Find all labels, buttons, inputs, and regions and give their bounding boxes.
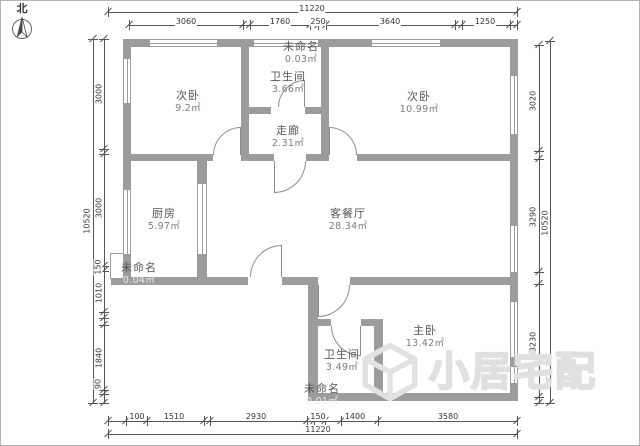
dimension-line [550, 41, 551, 403]
window [123, 189, 131, 255]
window [371, 39, 441, 47]
dimension-total-top: 11220 [298, 4, 325, 13]
room-area: 28.34㎡ [329, 221, 368, 232]
room-label-bedroom-right: 次卧 10.99㎡ [400, 91, 439, 115]
room-name: 卫生间 [270, 71, 306, 83]
room-label-master-bedroom: 主卧 13.42㎡ [406, 325, 445, 349]
dimension-label: 1010 [95, 282, 104, 304]
room-label-bathroom-top: 卫生间 3.66㎡ [270, 71, 306, 95]
dimension-label: 3230 [529, 331, 538, 353]
dimension-label: 1840 [95, 347, 104, 369]
door-opening [213, 154, 241, 161]
room-label-kitchen: 厨房 5.97㎡ [148, 208, 180, 232]
dimension-label: 1510 [163, 412, 185, 421]
room-area: 10.99㎡ [400, 104, 439, 115]
room-area: 0.04㎡ [121, 275, 157, 286]
door-arc [274, 161, 306, 193]
room-area: 13.42㎡ [406, 338, 445, 349]
door-arc [318, 285, 350, 317]
room-area: 3.49㎡ [324, 362, 360, 373]
dimension-total-right: 10520 [541, 209, 550, 236]
door-opening [248, 277, 282, 285]
room-name: 客餐厅 [329, 208, 368, 220]
room-area: 5.97㎡ [148, 221, 180, 232]
wall [241, 47, 249, 161]
north-indicator: 北 [9, 3, 35, 45]
dimension-line [104, 39, 105, 403]
window [149, 39, 218, 47]
compass-icon [10, 15, 34, 41]
door-opening [318, 277, 350, 285]
room-name: 卫生间 [324, 349, 360, 361]
door-opening [331, 319, 361, 326]
floorplan-canvas: 北 次卧 9.2㎡ [0, 0, 640, 446]
room-name: 走廊 [272, 125, 304, 137]
dimension-label: 150 [94, 258, 103, 275]
room-name: 未命名 [121, 262, 157, 274]
door-opening [274, 154, 306, 161]
room-label-unnamed-bottom: 未命名 0.01㎡ [304, 383, 340, 407]
room-name: 主卧 [406, 325, 445, 337]
door-opening [271, 107, 305, 114]
room-label-bedroom-left: 次卧 9.2㎡ [175, 90, 201, 114]
room-area: 2.31㎡ [272, 138, 304, 149]
dimension-label: 3020 [529, 90, 538, 112]
door-arc [250, 245, 282, 277]
room-name: 未命名 [304, 383, 340, 395]
room-area: 3.66㎡ [270, 84, 306, 95]
room-label-bathroom-bottom: 卫生间 3.49㎡ [324, 349, 360, 373]
room-label-corridor: 走廊 2.31㎡ [272, 125, 304, 149]
room-label-unnamed-top: 未命名 0.03㎡ [283, 41, 319, 65]
room-label-unnamed-left: 未命名 0.04㎡ [121, 262, 157, 286]
dimension-label: 90 [94, 378, 103, 390]
dimension-label: 1250 [474, 17, 496, 26]
room-name: 未命名 [283, 41, 319, 53]
dimension-label: 1760 [269, 17, 291, 26]
dimension-label: 100 [128, 412, 145, 421]
room-label-living-dining: 客餐厅 28.34㎡ [329, 208, 368, 232]
door-arc [329, 127, 357, 155]
north-label: 北 [9, 3, 35, 15]
room-name: 厨房 [148, 208, 180, 220]
room-name: 次卧 [175, 90, 201, 102]
wall [321, 47, 329, 161]
dimension-label: 150 [309, 412, 326, 421]
window [510, 225, 518, 273]
wall [374, 319, 383, 393]
dimension-total-left: 10520 [83, 207, 92, 234]
door-arc [213, 127, 241, 155]
dimension-label: 1400 [344, 412, 366, 421]
room-area: 0.03㎡ [283, 54, 319, 65]
room-name: 次卧 [400, 91, 439, 103]
window [510, 366, 518, 384]
dimension-label: 2930 [245, 412, 267, 421]
room-area: 0.01㎡ [304, 396, 340, 407]
dimension-label: 3000 [95, 83, 104, 105]
window [123, 58, 131, 104]
dimension-label: 3060 [175, 17, 197, 26]
sliding-door [197, 183, 207, 255]
wall [308, 285, 318, 393]
dimension-label: 3640 [379, 17, 401, 26]
window [510, 301, 518, 358]
window [510, 75, 518, 135]
dimension-total-bottom: 11220 [304, 425, 331, 434]
dimension-label: 250 [309, 17, 326, 26]
dimension-label: 3580 [437, 412, 459, 421]
room-area: 9.2㎡ [175, 103, 201, 114]
dimension-label: 3290 [529, 206, 538, 228]
door-opening [329, 154, 357, 161]
dimension-line [108, 434, 517, 435]
dimension-label: 3000 [95, 197, 104, 219]
